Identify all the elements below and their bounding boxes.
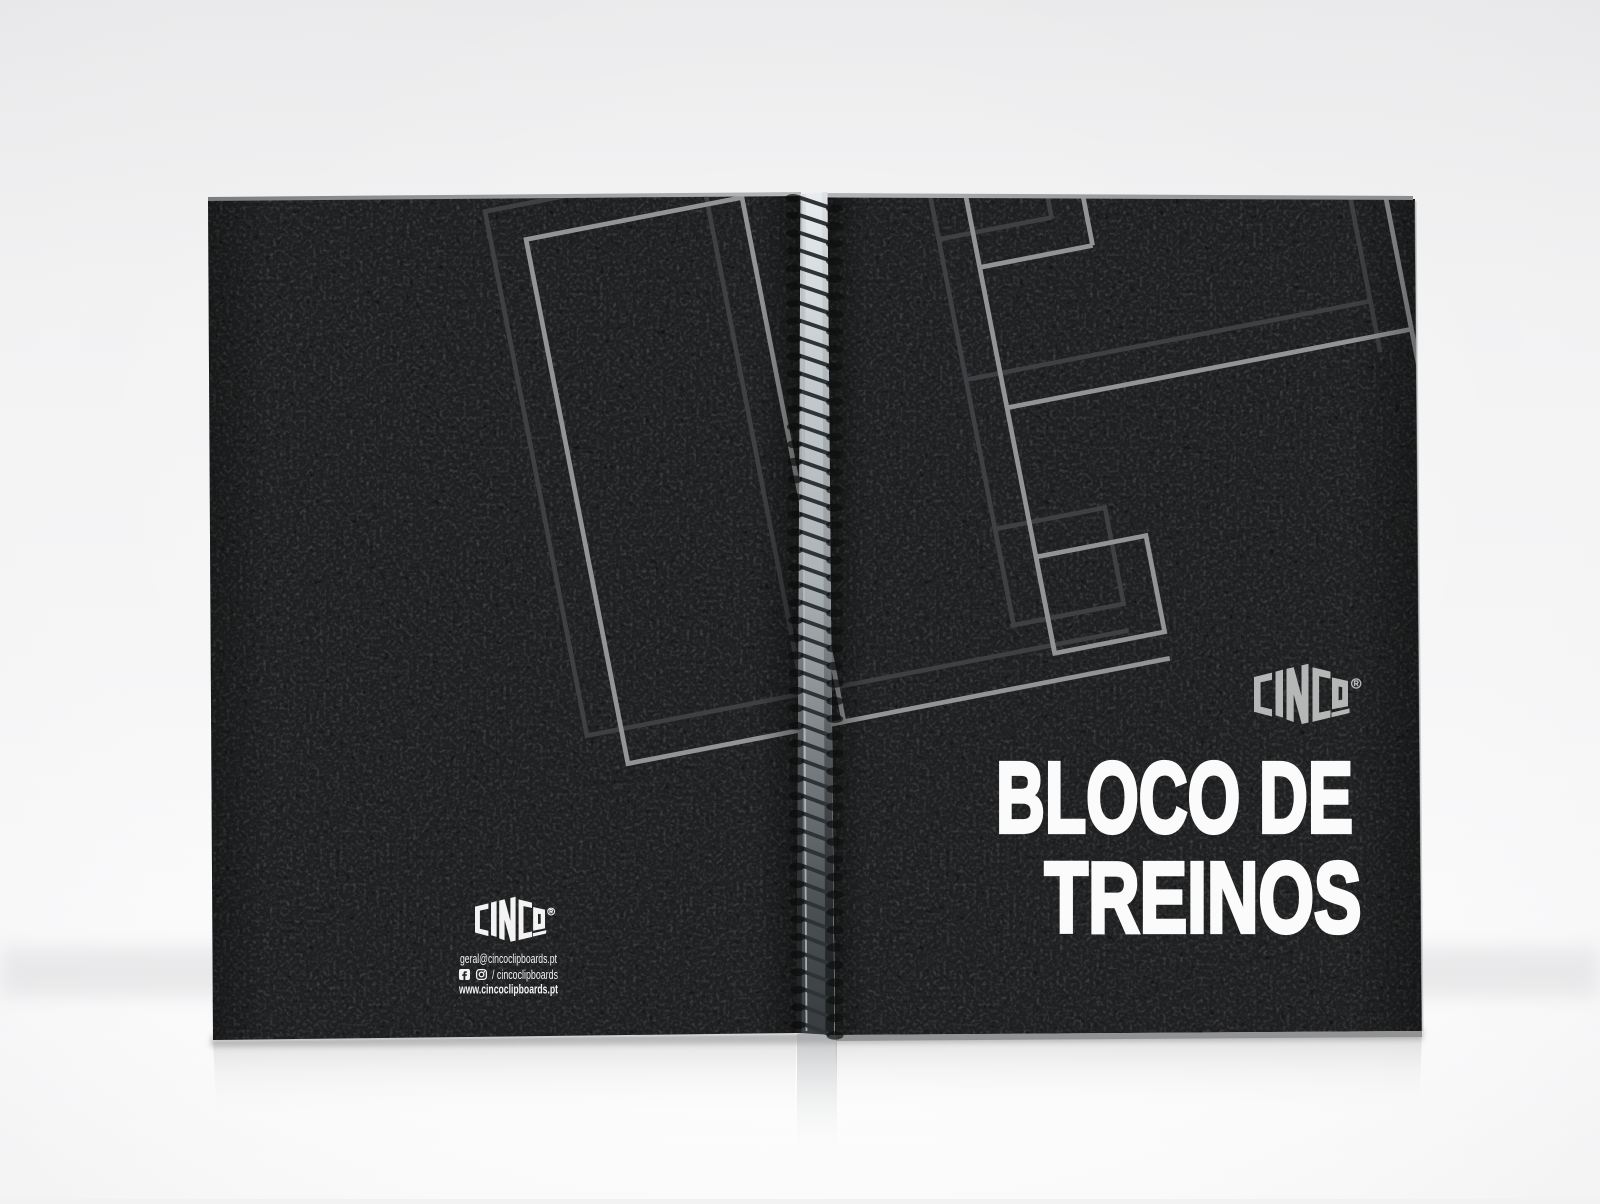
svg-text:TREINOS: TREINOS [1045,842,1362,954]
svg-text:/ cincoclipboards: / cincoclipboards [492,968,558,982]
svg-text:www.cincoclipboards.pt: www.cincoclipboards.pt [458,983,558,997]
svg-text:geral@cincoclipboards.pt: geral@cincoclipboards.pt [460,952,557,966]
svg-text:BLOCO DE: BLOCO DE [996,742,1353,854]
